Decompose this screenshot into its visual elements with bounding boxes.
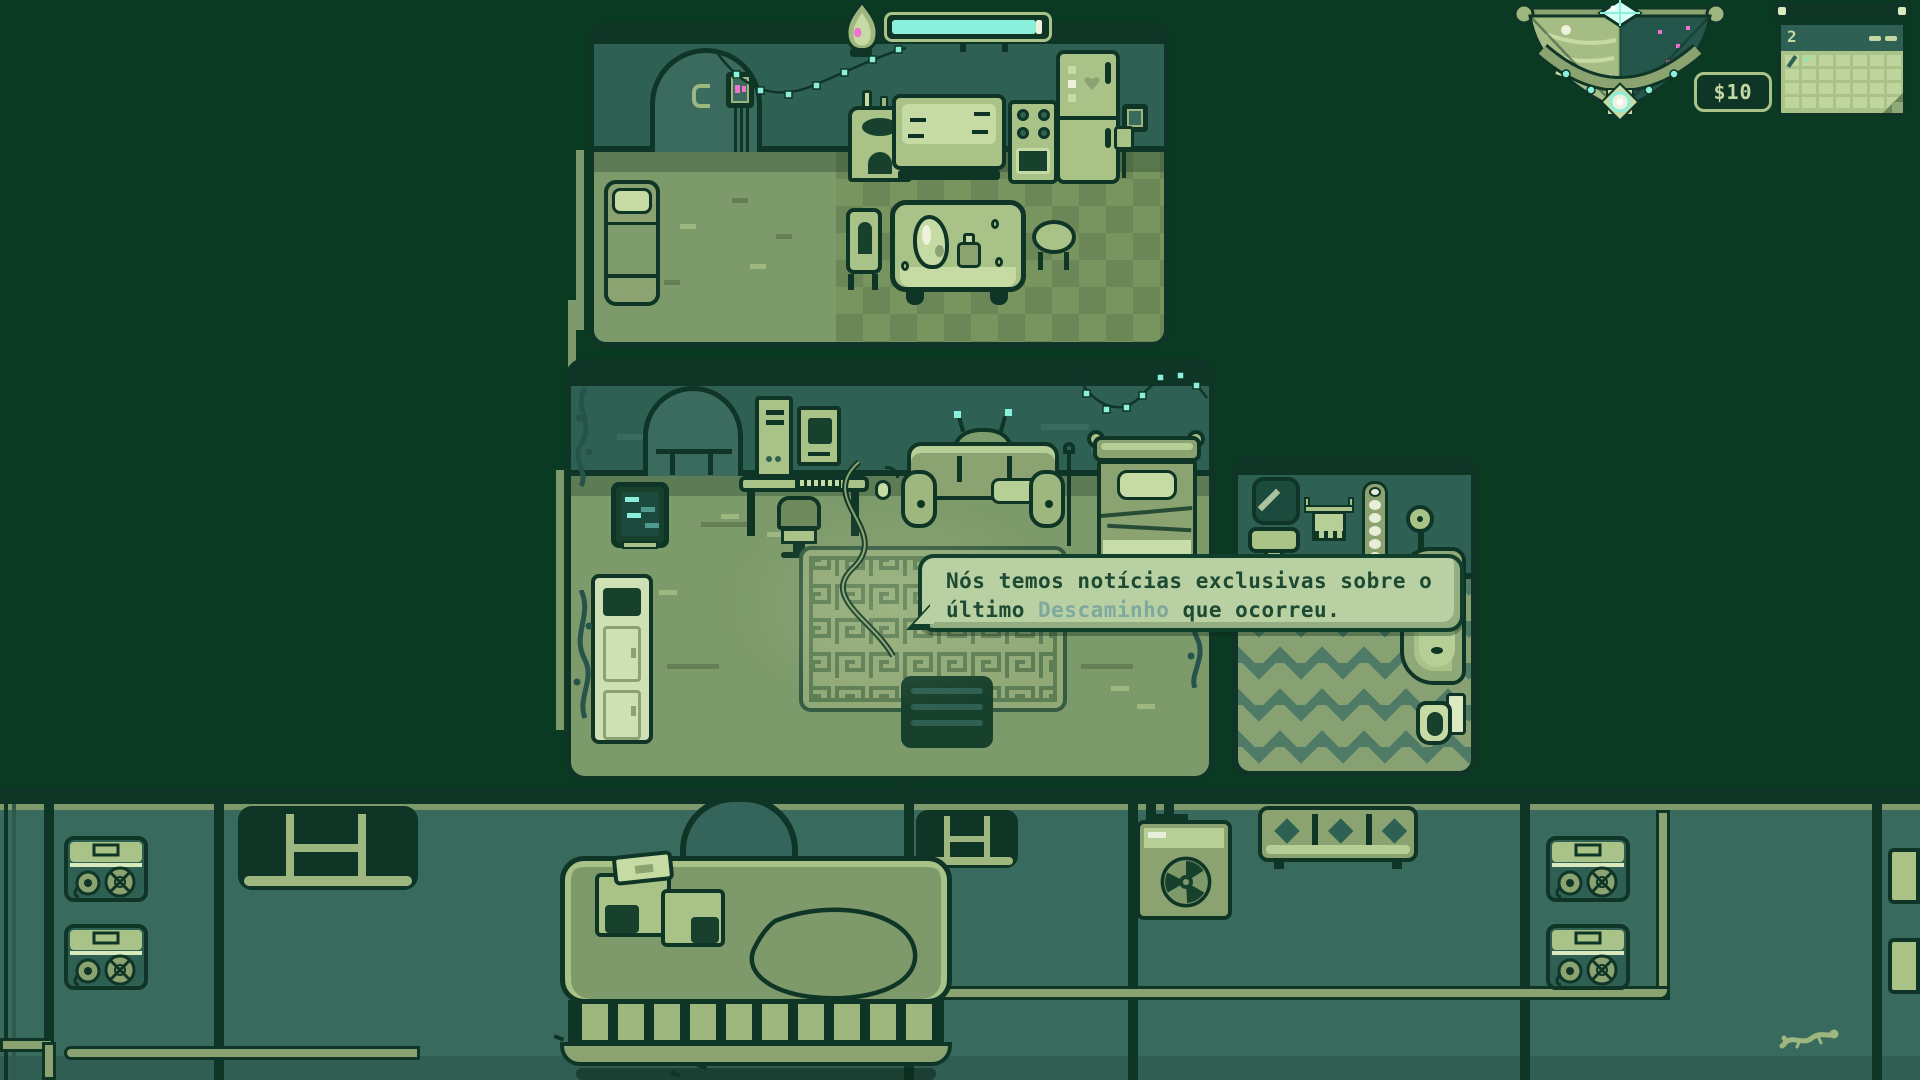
tank-top-band [1144,828,1224,848]
platform-stage [560,796,960,1080]
outlet-face [1127,109,1143,127]
meter-stub [1052,24,1088,34]
wall-vine [571,590,599,720]
bunk-rack [238,806,418,890]
bench-diamonds [1274,818,1299,843]
bread-shine [922,225,931,245]
basement-area [0,788,1920,1080]
radiation-tank[interactable] [1136,788,1240,928]
arm-button [1045,500,1053,508]
cabinet-shelf [603,588,641,616]
burner [1038,109,1050,121]
couch-seam [957,456,962,482]
stove[interactable] [1008,100,1058,184]
bread-loaf[interactable] [913,215,949,269]
meter-casing [884,12,1052,42]
binding-pin [1898,7,1906,15]
calendar-binding [1772,2,1912,20]
chair-leg [872,274,878,290]
flame-icon [842,0,882,52]
platform-fence [568,1000,944,1044]
calendar-widget: 2 ✓ [1772,2,1912,120]
tub-drain [1431,647,1443,654]
hair-strand [957,416,965,432]
page-curl-fold [1892,102,1903,113]
fridge-handle [1105,128,1111,148]
platform-top [560,856,952,1004]
bench-leg [1274,860,1284,869]
switch-cords [734,108,737,152]
cabinet[interactable] [591,574,653,744]
flame-meter [838,4,1098,60]
bench[interactable] [1258,806,1418,870]
toilet[interactable] [1416,693,1468,749]
calendar-header: 2 [1781,25,1903,51]
table-top [890,200,1026,292]
sparkle [954,411,961,418]
plug-cord [1122,148,1126,178]
dialogue-line-1: Nós temos notícias exclusivas sobre o [946,567,1436,596]
kitchen-room [588,22,1170,348]
sink-skirt [868,152,892,174]
pipe-vertical [1656,810,1670,1000]
tv-screen [621,492,659,536]
crate-front [691,917,719,943]
pipe-elbow [42,1042,56,1080]
header-dashes [1869,36,1881,41]
fridge-handle [1105,62,1111,84]
couch[interactable] [907,434,1059,534]
stool-top [1032,220,1076,254]
washer-machine[interactable] [64,836,148,902]
chain-links [1369,487,1381,497]
heart-magnet [1084,76,1100,90]
shower-hole [1417,516,1423,522]
towel [1312,511,1346,541]
cot-rail [608,274,656,278]
counter-slab [892,94,1006,170]
floor-lamp [1063,442,1075,546]
washer-machine[interactable] [64,924,148,990]
table-rim [900,267,1016,287]
wall-vine [571,388,599,488]
table-foot [906,292,924,305]
wall-seam [214,804,224,1080]
dialogue-box[interactable]: Nós temos notícias exclusivas sobre o úl… [918,554,1464,632]
washer-machine[interactable] [1546,836,1630,902]
jar[interactable] [957,233,981,269]
wall-seam [1872,804,1882,1080]
flame-bracket [850,48,872,57]
crate-lid [612,850,675,886]
cot[interactable] [604,180,660,306]
crate[interactable] [661,889,725,947]
calendar-day-number: 2 [1787,27,1797,46]
fridge-magnets [1068,66,1076,74]
platform-shadow [576,1068,936,1080]
tv-stand [622,541,658,549]
counter-marks [910,118,926,122]
floor-marks [680,224,696,229]
pipe-horizontal [64,1046,420,1060]
meter-track [892,20,1044,34]
dialogue-line2-before: último [946,598,1038,622]
page-curl [1883,93,1903,113]
chair-back [846,208,882,274]
platform-base [560,1042,952,1066]
chair[interactable] [846,208,882,292]
tank-highlight [1148,832,1166,838]
couch-arm [1029,470,1065,528]
kitchen-counter[interactable] [892,94,1006,182]
cabinet-stub [1888,848,1920,904]
mirror-streak [1258,489,1281,512]
lamp-pole [1067,450,1071,546]
sparkle [1005,409,1012,416]
money-label: $10 [1713,80,1752,104]
tv-static [625,497,639,502]
cabinet-stub [1888,938,1920,994]
headboard-rim [1101,443,1193,450]
wall-hook [692,84,710,108]
washer-machine[interactable] [1546,924,1630,990]
couch-arm [901,470,937,528]
outer-wall-trim [556,470,564,730]
cot-pillow [612,188,652,214]
fridge-divider [1060,116,1116,120]
cabinet-handle [631,648,636,658]
string-lights [1069,366,1211,420]
tower-slots [766,410,784,415]
hose-loop [715,891,935,1006]
bench-seat [1266,845,1410,854]
stool[interactable] [1032,220,1076,276]
outer-wall-trim [576,150,584,330]
blanket-fold [1107,524,1192,542]
pillow [1117,470,1177,500]
cot-blanket [608,222,656,274]
dialogue-line-2: último Descaminho que ocorreu. [946,596,1436,625]
meter-ticks [960,42,966,52]
calendar-body: 2 ✓ [1778,22,1906,116]
crumb [991,219,999,229]
stool-leg [1064,252,1069,270]
toilet-bowl [1416,701,1452,745]
burner [1017,109,1029,121]
bench-leg [1392,860,1402,869]
rack-bar [290,844,366,852]
headboard [1093,436,1201,462]
plug [1114,126,1134,150]
crate-lid-mark [635,864,654,874]
ceiling-shadow [1238,461,1471,475]
monitor-screen [808,418,832,444]
bench-back [1258,806,1418,862]
wall-seam [1520,804,1530,1080]
dialogue-keyword: Descaminho [1038,598,1169,622]
meter-fill [892,20,1036,34]
sunburst-icon [1602,84,1639,121]
jar-body [957,242,981,268]
chair-arch [858,222,872,254]
burner [1017,127,1029,139]
sink-basin [1248,527,1300,553]
hair-strand [999,416,1007,432]
fridge[interactable] [1056,50,1120,184]
check-icon: ✓ [1803,52,1811,67]
crate-front [605,905,639,933]
game-screen: $10 2 ✓ Nós temos notícias exclusivas so… [0,0,1920,1080]
mirror[interactable] [1252,477,1300,525]
shower-head[interactable] [1406,505,1434,533]
towel-rack[interactable] [1304,497,1354,551]
counter-base [898,170,1000,180]
chair-leg [848,274,854,290]
crumb [995,257,1003,267]
dialogue-line2-after: que ocorreu. [1169,598,1340,622]
meter-tip [1036,20,1042,34]
money-badge: $10 [1694,72,1772,112]
dining-table[interactable] [890,200,1026,308]
rack-base [244,876,412,886]
toilet-seat-hole [1427,712,1443,736]
radiation-icon [1158,854,1214,910]
counter-top [902,104,996,144]
burner [1038,127,1050,139]
bread-notch [935,245,944,257]
cabinet-handle [631,706,636,716]
lizard-creature[interactable] [1778,1026,1842,1052]
towel-fringe [1315,531,1343,539]
binding-pin [1778,7,1786,15]
stool-leg [1038,252,1043,270]
oven-door [1016,148,1050,174]
table-foot [990,292,1008,305]
tank-body [1136,820,1232,920]
crumb [901,261,909,271]
basement-top-edge [0,788,1920,804]
arm-button [917,500,925,508]
